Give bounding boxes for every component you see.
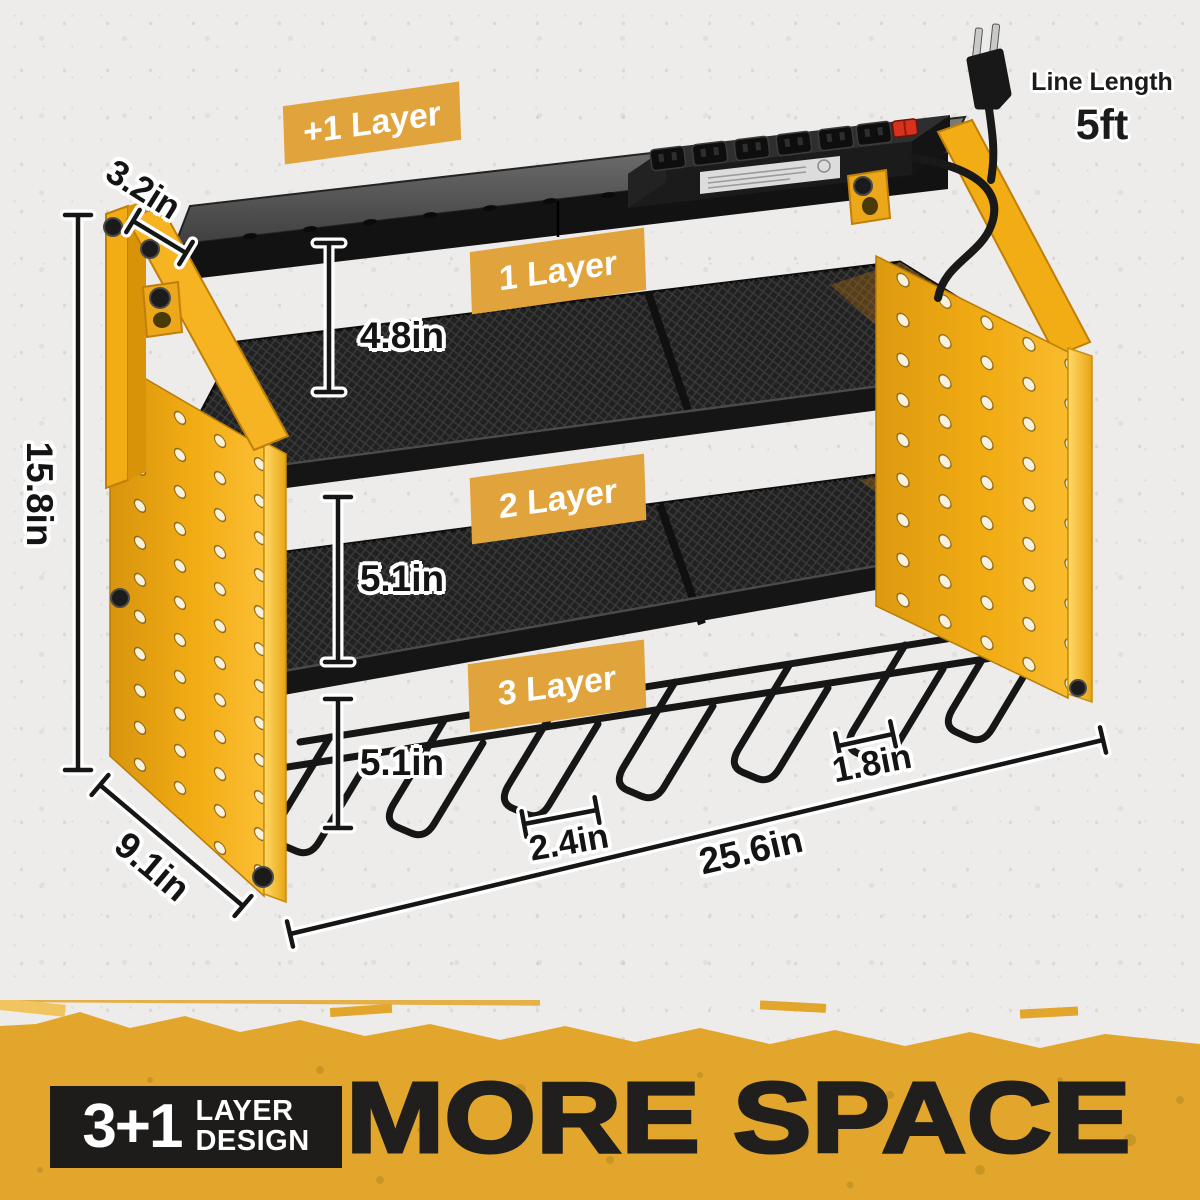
dim-label-layer3-height: 5.1in [360, 742, 444, 784]
line-length-label: Line Length [1012, 68, 1192, 97]
layer-badge-plus1-label: +1 Layer [303, 94, 442, 153]
banner-headline: MORE SPACE [346, 1062, 1131, 1174]
line-length-note: Line Length 5ft [1012, 68, 1192, 150]
dim-label-total-height: 15.8in [18, 442, 60, 547]
power-strip-switch [892, 119, 918, 138]
product-infographic: +1 Layer 1 Layer 2 Layer 3 Layer 3.2in 4… [0, 0, 1200, 1200]
banner-badge-word1: LAYER [195, 1097, 309, 1127]
dim-label-layer2-height: 5.1in [360, 558, 444, 600]
line-length-value: 5ft [1012, 101, 1192, 150]
banner-badge-number: 3+1 [82, 1096, 181, 1158]
layer-badge-1-label: 1 Layer [498, 243, 617, 299]
banner-badge-word2: DESIGN [195, 1127, 309, 1157]
power-plug-icon [970, 24, 1008, 106]
dim-label-layer1-height: 4.8in [360, 315, 444, 357]
layer-badge-3-label: 3 Layer [497, 658, 616, 714]
layer-badge-2-label: 2 Layer [498, 471, 617, 527]
banner-badge: 3+1 LAYER DESIGN [50, 1086, 342, 1168]
banner-badge-words: LAYER DESIGN [195, 1097, 309, 1156]
